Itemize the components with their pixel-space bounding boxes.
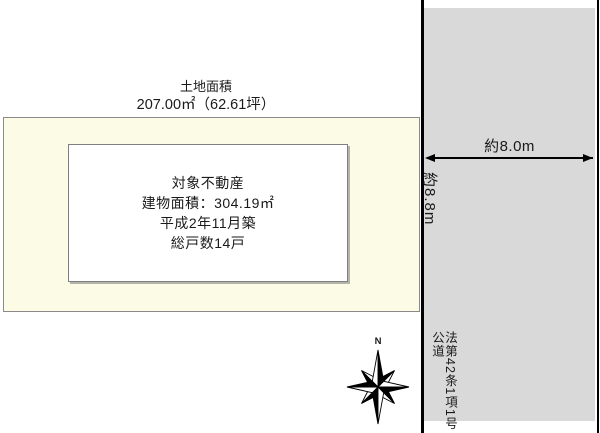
plot-diagram: 土地面積 207.00㎡（62.61坪） 対象不動産 建物面積：304.19㎡ … xyxy=(0,0,600,433)
boundary-line-right xyxy=(597,0,599,433)
building-info-line: 総戸数14戸 xyxy=(171,233,246,253)
road-width-label: 約8.0m xyxy=(424,135,595,156)
compass-north-label: N xyxy=(366,336,390,347)
dimension-arrowhead-right-icon xyxy=(583,154,593,162)
building-info-line: 建物面積：304.19㎡ xyxy=(142,193,275,213)
land-area-value: 207.00㎡（62.61坪） xyxy=(6,96,406,114)
frontage-length-label: 約8.8m xyxy=(420,172,441,225)
dimension-arrowhead-left-icon xyxy=(425,154,435,162)
building-info-line: 対象不動産 xyxy=(172,173,245,193)
dimension-arrow-line xyxy=(427,157,593,159)
compass-rose-icon xyxy=(338,347,418,427)
road-law-label: 法第42条1項1号 xyxy=(441,331,460,430)
building-info-line: 平成2年11月築 xyxy=(160,213,256,233)
land-area-title: 土地面積 xyxy=(6,78,406,96)
land-area-title-block: 土地面積 207.00㎡（62.61坪） xyxy=(6,78,406,114)
building-info-box: 対象不動産 建物面積：304.19㎡ 平成2年11月築 総戸数14戸 xyxy=(68,144,348,282)
